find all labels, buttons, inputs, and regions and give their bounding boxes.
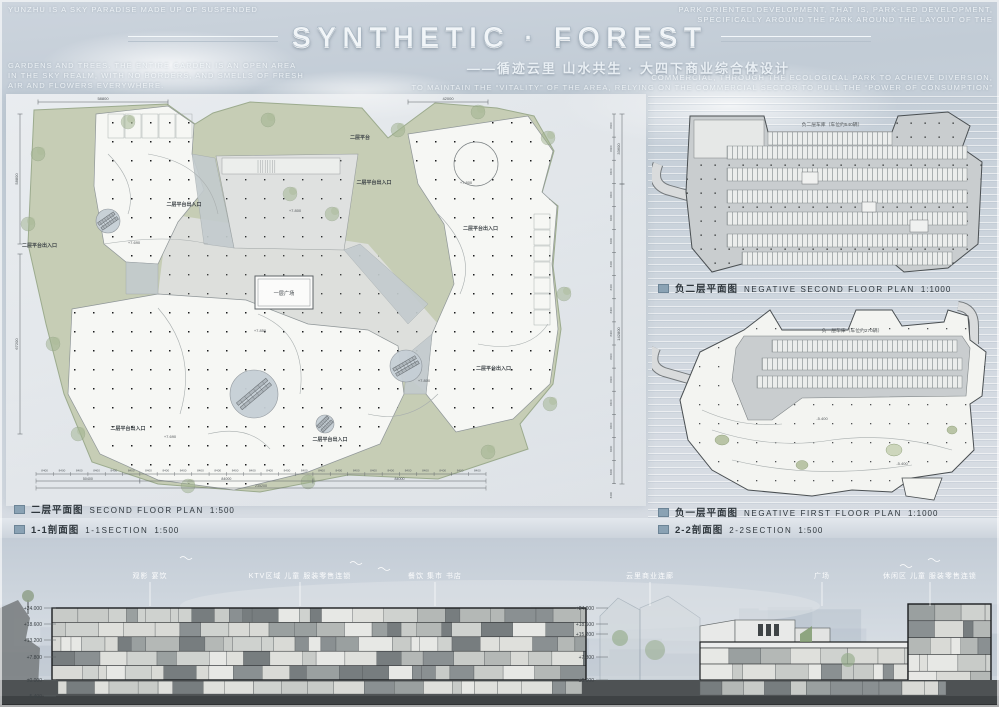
intro-line: AIR AND FLOWERS EVERYWHERE. bbox=[8, 81, 328, 91]
dimension-label: 8400 bbox=[422, 469, 429, 473]
section-level-label: ±0.000 bbox=[27, 678, 42, 684]
plan-label-en: NEGATIVE SECOND FLOOR PLAN bbox=[744, 285, 915, 294]
plan-label-en: SECOND FLOOR PLAN bbox=[90, 506, 204, 515]
dimension-label: 42000 bbox=[442, 96, 454, 101]
second-floor-plan-drawing: 一层广场 二层平台出入口二层平台出入口二层平台出入口二层平台出入口二层平台出入口… bbox=[8, 94, 642, 502]
title-row: SYNTHETIC · FOREST bbox=[0, 22, 999, 55]
parking-stalls bbox=[727, 132, 967, 265]
dimension-label: 8400 bbox=[162, 469, 169, 473]
dimension-label: 8400 bbox=[232, 469, 239, 473]
title-rule-left bbox=[128, 36, 278, 42]
entrance-label: 二层平台出入口 bbox=[312, 436, 347, 443]
dimension-label: 58800 bbox=[97, 96, 109, 101]
dimension-label: 8400 bbox=[180, 469, 187, 473]
dimension-label: 50400 bbox=[83, 477, 93, 481]
plan-label-neg2: 负二层平面图 NEGATIVE SECOND FLOOR PLAN 1:1000 bbox=[658, 281, 951, 295]
title-rule-right bbox=[721, 36, 871, 42]
elevation-label: +7.850 bbox=[254, 328, 267, 333]
section-label-2-2: 2-2剖面图 2-2SECTION 1:500 bbox=[658, 522, 823, 536]
dimension-label: 8400 bbox=[111, 469, 118, 473]
dimension-label: 8400 bbox=[284, 469, 291, 473]
dimension-label: 8400 bbox=[249, 469, 256, 473]
intro-line: TO MAINTAIN THE “VITALITY” OF THE AREA, … bbox=[313, 83, 993, 93]
plan-label-cn: 负二层平面图 bbox=[675, 281, 738, 295]
section-label-en: 2-2SECTION bbox=[729, 526, 792, 535]
dimension-label: 8400 bbox=[609, 330, 613, 337]
dimension-label: 8400 bbox=[387, 469, 394, 473]
dimension-label: 33600 bbox=[616, 143, 621, 155]
section-label-cn: 2-2剖面图 bbox=[675, 522, 723, 536]
intro-text-left-1: YUNZHU IS A SKY PARADISE MADE UP OF SUSP… bbox=[8, 5, 308, 15]
dimension-label: 8400 bbox=[197, 469, 204, 473]
dimension-label: 84000 bbox=[394, 477, 404, 481]
dimension-label: 8400 bbox=[609, 492, 613, 499]
intro-text-left-2: GARDENS AND TREES. THE ENTIRE GARDEN IS … bbox=[8, 61, 328, 91]
dimension-label: 8400 bbox=[76, 469, 83, 473]
section-level-label: +13.200 bbox=[24, 638, 42, 644]
elevation-label: +7.800 bbox=[460, 180, 473, 185]
section-label-scale: 1:500 bbox=[798, 526, 823, 535]
dimension-label: 8400 bbox=[609, 307, 613, 314]
dimension-label: 8400 bbox=[474, 469, 481, 473]
elevation-label: +7.800 bbox=[418, 378, 431, 383]
entrance-label: 二层平台出入口 bbox=[166, 201, 201, 208]
dimension-label: 8400 bbox=[318, 469, 325, 473]
elevation-label: +7.690 bbox=[164, 434, 177, 439]
sections-drawing: 观影 宴饮KTV区域 儿童 服装零售连锁餐饮 集市 书店 云里商业连廊广场休闲区… bbox=[0, 538, 999, 707]
elevation-label: +7.690 bbox=[128, 240, 141, 245]
dimension-label: 8400 bbox=[301, 469, 308, 473]
first-floor-plaza: 一层广场 bbox=[255, 276, 313, 309]
dimension-label: 142800 bbox=[616, 327, 621, 341]
entrance-label: 二层平台出入口 bbox=[110, 425, 145, 432]
section-level-label: -5.400 bbox=[28, 694, 42, 700]
dimension-label: 58800 bbox=[14, 173, 19, 185]
plan-label-scale: 1:1000 bbox=[908, 509, 938, 518]
dimension-label: 8400 bbox=[266, 469, 273, 473]
presentation-board: { "header": { "title": "SYNTHETIC · FORE… bbox=[0, 0, 999, 707]
legend-square-icon bbox=[658, 508, 669, 517]
section-level-label: +15.200 bbox=[576, 632, 594, 638]
dimension-label: 8400 bbox=[353, 469, 360, 473]
plaza-label: 一层广场 bbox=[274, 289, 295, 297]
intro-line: PARK ORIENTED DEVELOPMENT, THAT IS, PARK… bbox=[633, 5, 993, 15]
section-level-label: +24.000 bbox=[576, 606, 594, 612]
dimension-label: 8400 bbox=[609, 468, 613, 475]
level-tag: -5.400 bbox=[896, 461, 908, 466]
section-level-label: +18.600 bbox=[24, 622, 42, 628]
dimension-label: 8400 bbox=[609, 445, 613, 452]
section-level-label: +18.600 bbox=[576, 622, 594, 628]
dimension-label: 8400 bbox=[609, 214, 613, 221]
section-level-label: +24.000 bbox=[24, 606, 42, 612]
plan-label-cn: 负一层平面图 bbox=[675, 505, 738, 519]
dimension-label: 8400 bbox=[609, 353, 613, 360]
dimension-label: 8400 bbox=[609, 284, 613, 291]
section-label-en: 1-1SECTION bbox=[85, 526, 148, 535]
basement-1-1 bbox=[58, 681, 582, 694]
section-level-label: +7.800 bbox=[27, 655, 43, 661]
parking-note: 负二层车库（车位约540辆） bbox=[802, 121, 863, 128]
page-subtitle: ——循迹云里 山水共生 · 大四下商业综合体设计 bbox=[467, 58, 790, 77]
plan-label-second-floor: 二层平面图 SECOND FLOOR PLAN 1:500 bbox=[14, 502, 235, 516]
section-label-1-1: 1-1剖面图 1-1SECTION 1:500 bbox=[14, 522, 179, 536]
terrace-label: 二层平台 bbox=[350, 134, 370, 141]
dimension-label: 8400 bbox=[439, 469, 446, 473]
section-callout-label: KTV区域 儿童 服装零售连锁 bbox=[249, 571, 352, 580]
dimension-label: 67200 bbox=[14, 338, 19, 350]
entrance-label: 二层平台出入口 bbox=[22, 242, 57, 249]
dimension-label: 8400 bbox=[214, 469, 221, 473]
plan-label-scale: 1:500 bbox=[210, 506, 235, 515]
dimension-label: 8400 bbox=[405, 469, 412, 473]
dimension-label: 8400 bbox=[93, 469, 100, 473]
entrance-label: 二层平台出入口 bbox=[476, 365, 511, 372]
plan-label-scale: 1:1000 bbox=[921, 285, 951, 294]
dimension-label: 8400 bbox=[609, 399, 613, 406]
intro-line: GARDENS AND TREES. THE ENTIRE GARDEN IS … bbox=[8, 61, 328, 71]
page-title: SYNTHETIC · FOREST bbox=[292, 22, 708, 55]
dimension-label: 84000 bbox=[221, 477, 231, 481]
dimension-label: 8400 bbox=[609, 376, 613, 383]
elevation-label: +7.800 bbox=[289, 208, 302, 213]
dimension-label: 8400 bbox=[609, 122, 613, 129]
section-callout-label: 餐饮 集市 书店 bbox=[408, 571, 462, 580]
dimension-label: 8400 bbox=[59, 469, 66, 473]
dimension-label: 8400 bbox=[609, 422, 613, 429]
basement-2-2 bbox=[700, 681, 946, 695]
section-callout-label: 云里商业连廊 bbox=[626, 571, 674, 580]
dimension-label: 8400 bbox=[609, 237, 613, 244]
section-level-label: ±0.000 bbox=[579, 678, 594, 684]
legend-square-icon bbox=[14, 505, 25, 514]
legend-square-icon bbox=[658, 525, 669, 534]
section-callout-label: 休闲区 儿童 服装零售连锁 bbox=[883, 571, 977, 580]
dimension-label: 8400 bbox=[609, 168, 613, 175]
parking-stalls bbox=[757, 340, 962, 388]
dimension-label: 235200 bbox=[255, 484, 267, 488]
section-level-label: +7.800 bbox=[579, 655, 595, 661]
parking-note: 负一层车库（车位约270辆） bbox=[822, 327, 883, 334]
dimension-label: 8400 bbox=[609, 145, 613, 152]
section-1-1-building bbox=[52, 608, 586, 680]
legend-square-icon bbox=[14, 525, 25, 534]
section-callout-label: 观影 宴饮 bbox=[133, 571, 168, 580]
entrance-label: 二层平台出入口 bbox=[463, 225, 498, 232]
level-tag: -5.400 bbox=[816, 416, 828, 421]
plan-label-neg1: 负一层平面图 NEGATIVE FIRST FLOOR PLAN 1:1000 bbox=[658, 505, 938, 519]
dimension-label: 8400 bbox=[41, 469, 48, 473]
plan-label-cn: 二层平面图 bbox=[31, 502, 84, 516]
negative-second-floor-plan-drawing: 负二层车库（车位约540辆） bbox=[652, 102, 995, 280]
dimension-label: 8400 bbox=[609, 191, 613, 198]
section-callout-label: 广场 bbox=[814, 571, 830, 580]
negative-first-floor-plan-drawing: 负一层车库（车位约270辆） -5.400-5.400 bbox=[652, 300, 995, 503]
intro-line: IN THE SKY REALM, WITH NO BORDERS, AND S… bbox=[8, 71, 328, 81]
terrace-rooms bbox=[222, 158, 340, 174]
legend-square-icon bbox=[658, 284, 669, 293]
dimension-label: 8400 bbox=[609, 261, 613, 268]
entrance-label: 二层平台出入口 bbox=[356, 179, 391, 186]
section-label-scale: 1:500 bbox=[154, 526, 179, 535]
section-label-cn: 1-1剖面图 bbox=[31, 522, 79, 536]
dimension-label: 8400 bbox=[457, 469, 464, 473]
dimension-label: 8400 bbox=[145, 469, 152, 473]
plan-label-en: NEGATIVE FIRST FLOOR PLAN bbox=[744, 509, 902, 518]
dimension-label: 8400 bbox=[370, 469, 377, 473]
dimension-label: 8400 bbox=[336, 469, 343, 473]
stair-wing bbox=[902, 478, 942, 500]
dimension-label: 8400 bbox=[128, 469, 135, 473]
